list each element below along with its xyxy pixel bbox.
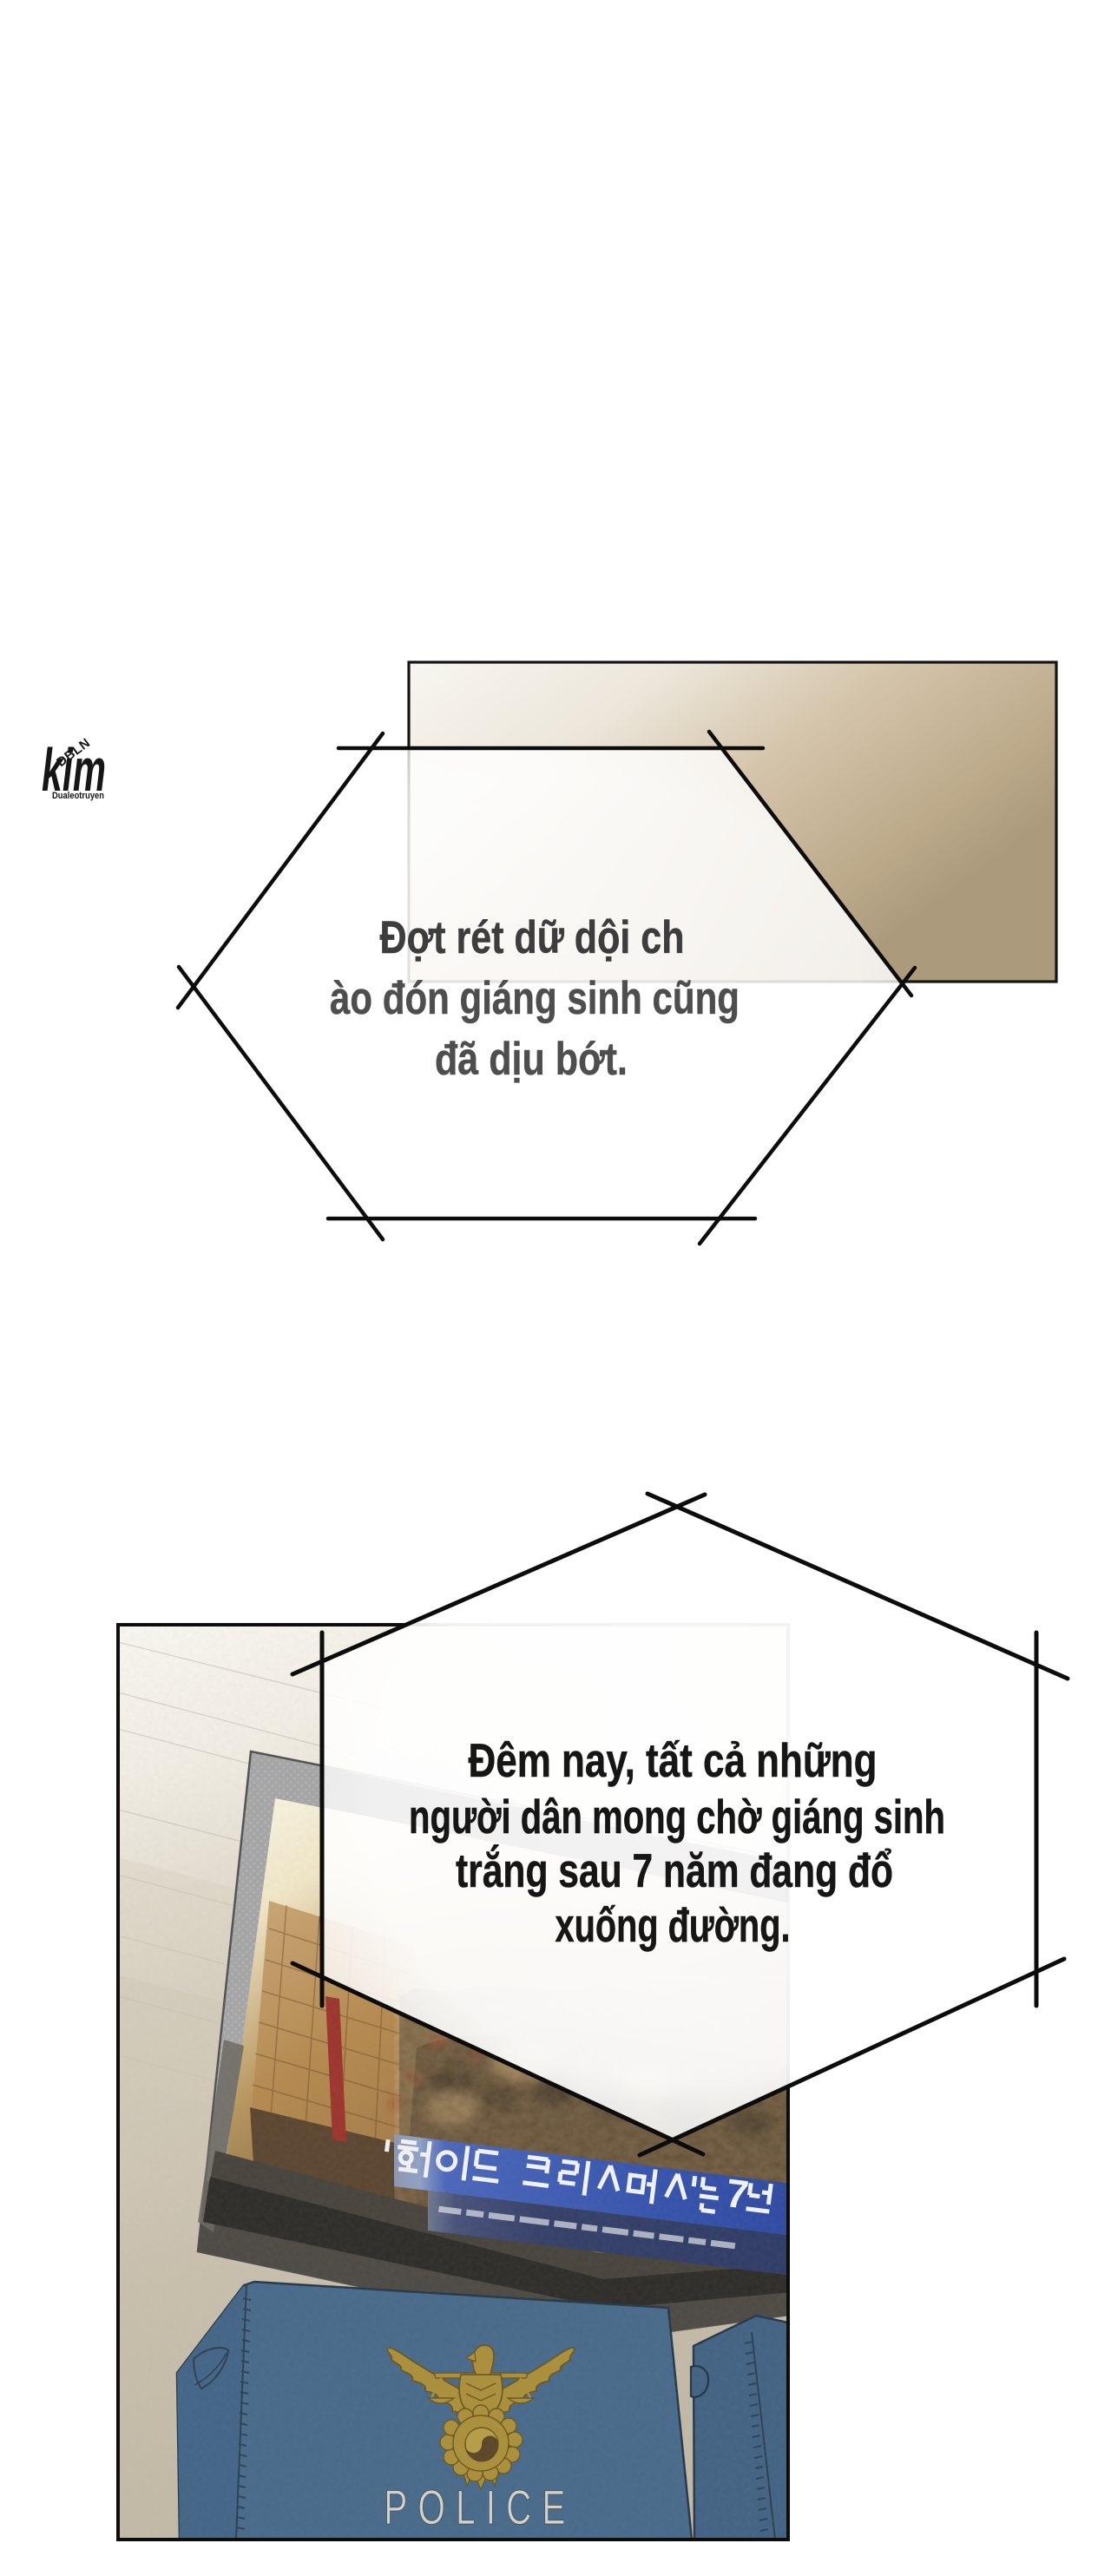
svg-text:Dualeotruyen: Dualeotruyen (52, 791, 104, 801)
svg-text:đã dịu bớt.: đã dịu bớt. (435, 1034, 628, 1085)
svg-text:xuống đường.: xuống đường. (555, 1898, 791, 1952)
svg-text:Đợt rét dữ dội ch: Đợt rét dữ dội ch (380, 912, 685, 963)
svg-text:Đêm nay, tất cả những: Đêm nay, tất cả những (469, 1733, 878, 1787)
svg-text:ào đón giáng sinh cũng: ào đón giáng sinh cũng (330, 973, 740, 1024)
svg-text:trắng sau 7 năm đang đổ: trắng sau 7 năm đang đổ (456, 1843, 893, 1897)
svg-text:người dân mong chờ giáng sinh: người dân mong chờ giáng sinh (409, 1790, 945, 1843)
